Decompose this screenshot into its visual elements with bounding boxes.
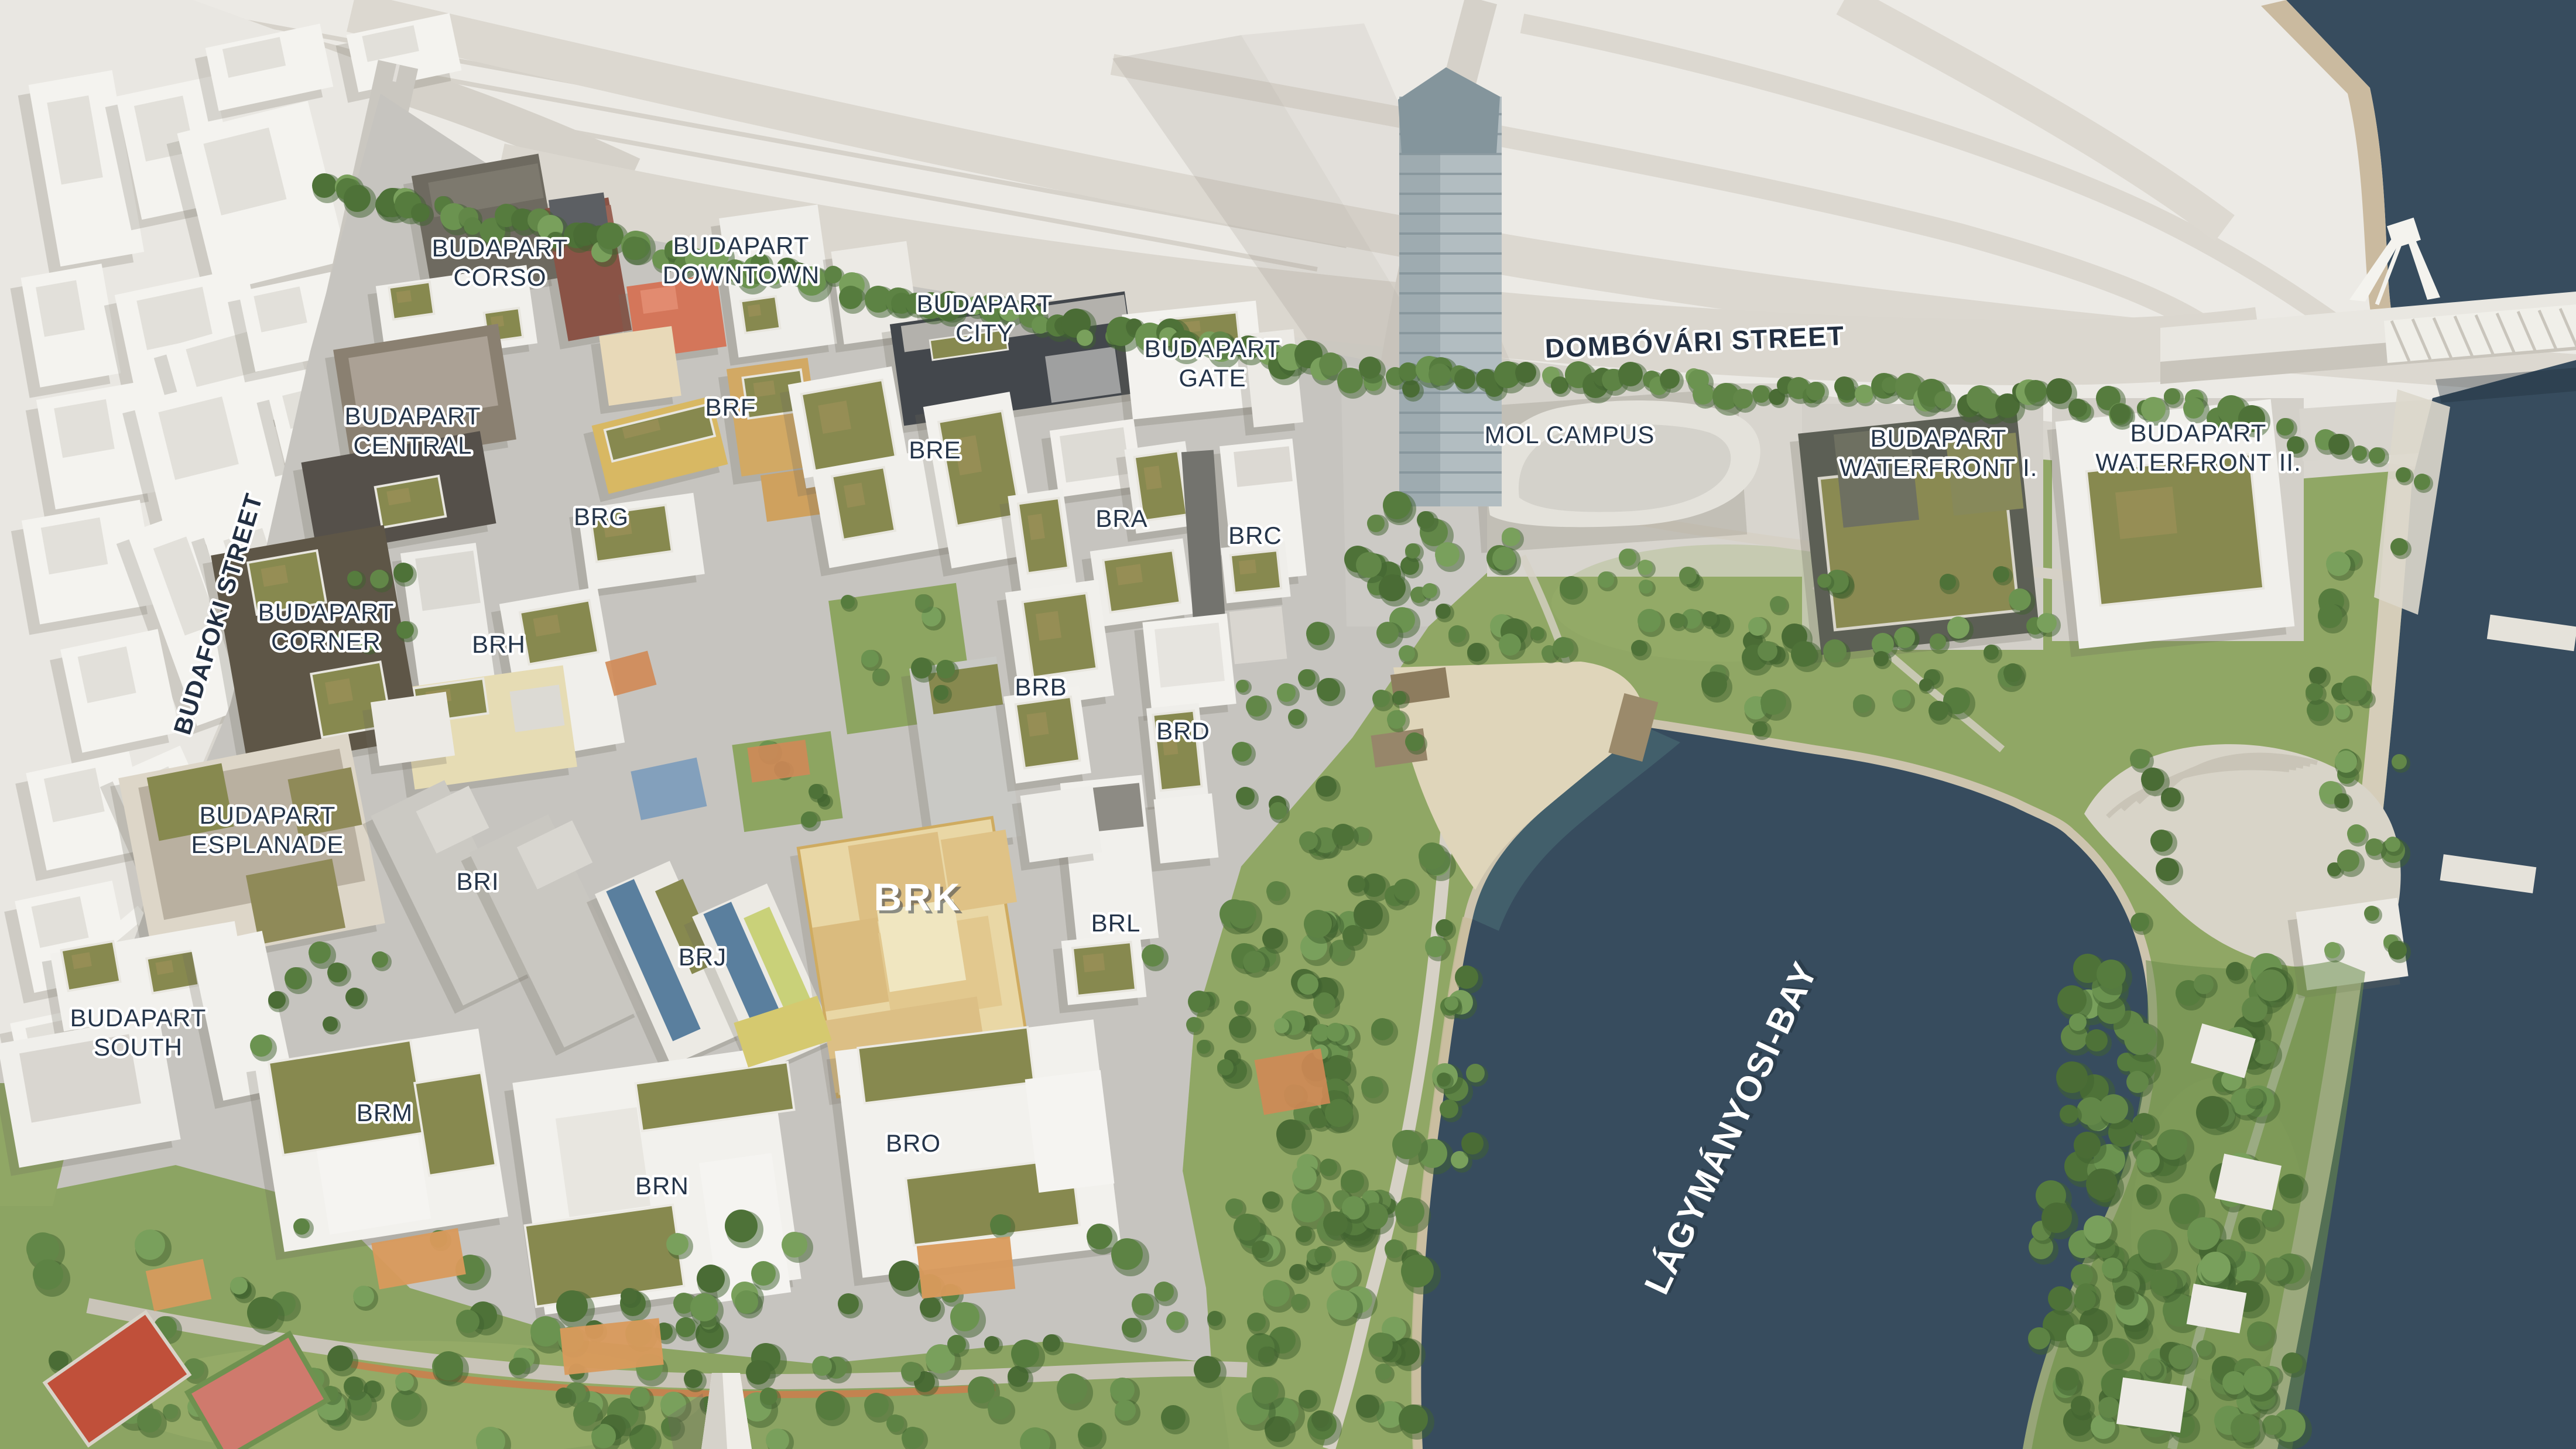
svg-text:BRD: BRD xyxy=(1156,717,1210,745)
svg-text:BRO: BRO xyxy=(886,1129,941,1157)
svg-text:BRA: BRA xyxy=(1095,505,1147,532)
svg-text:BRL: BRL xyxy=(1091,909,1141,937)
svg-text:BRM: BRM xyxy=(357,1099,413,1126)
svg-text:BRE: BRE xyxy=(909,436,961,464)
svg-text:BRB: BRB xyxy=(1015,673,1067,701)
svg-text:BRG: BRG xyxy=(574,503,629,530)
svg-text:BRC: BRC xyxy=(1228,522,1282,549)
svg-text:BRF: BRF xyxy=(705,393,756,421)
svg-text:BRI: BRI xyxy=(456,868,499,895)
svg-text:BRH: BRH xyxy=(472,631,526,658)
svg-text:BRK: BRK xyxy=(874,875,961,919)
svg-text:MOL CAMPUS: MOL CAMPUS xyxy=(1485,421,1655,448)
svg-text:BRJ: BRJ xyxy=(679,943,727,971)
svg-text:BRN: BRN xyxy=(635,1172,689,1200)
